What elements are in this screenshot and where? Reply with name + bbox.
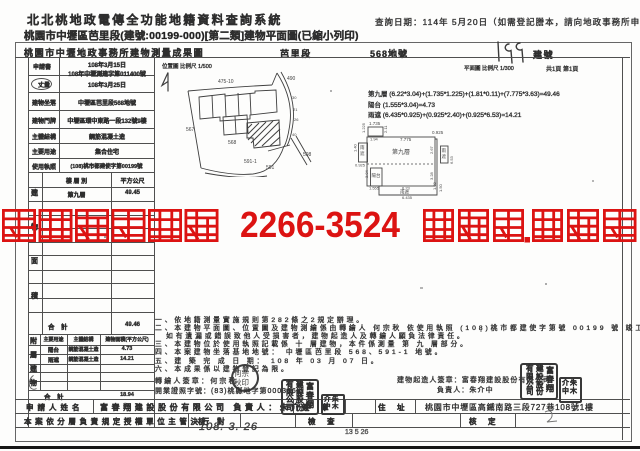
svg-text:陽台: 陽台 xyxy=(372,172,381,179)
svg-text:1.225: 1.225 xyxy=(361,122,366,133)
svg-text:7.775: 7.775 xyxy=(400,137,412,142)
svg-text:3.28: 3.28 xyxy=(429,171,434,180)
svg-text:26: 26 xyxy=(294,117,299,122)
svg-text:591: 591 xyxy=(266,165,275,171)
svg-text:6.435: 6.435 xyxy=(402,195,413,200)
svg-text:2266-3524: 2266-3524 xyxy=(240,206,400,245)
svg-text:591-1: 591-1 xyxy=(244,159,257,165)
svg-text:遮: 遮 xyxy=(442,153,447,160)
svg-text:1.94: 1.94 xyxy=(370,137,379,142)
svg-text:遮: 遮 xyxy=(360,150,365,157)
svg-text:1.555: 1.555 xyxy=(369,186,380,191)
svg-text:490: 490 xyxy=(287,76,296,82)
svg-text:475-10: 475-10 xyxy=(218,79,234,85)
svg-text:何宗: 何宗 xyxy=(234,368,249,378)
svg-text:1.02: 1.02 xyxy=(432,181,437,190)
svg-text:2.11: 2.11 xyxy=(383,125,388,133)
svg-text:1.735: 1.735 xyxy=(369,121,381,126)
svg-text:0.925: 0.925 xyxy=(355,163,366,168)
svg-text:21: 21 xyxy=(293,107,298,112)
svg-text:3.04: 3.04 xyxy=(364,169,369,178)
svg-text:1.50: 1.50 xyxy=(438,183,443,192)
svg-text:40: 40 xyxy=(292,132,297,137)
svg-text:第九層: 第九層 xyxy=(392,148,410,156)
svg-text:6.53: 6.53 xyxy=(449,155,454,164)
svg-text:567: 567 xyxy=(186,127,195,133)
svg-text:30: 30 xyxy=(292,95,297,100)
svg-text:0.925: 0.925 xyxy=(432,130,444,135)
svg-text:1.40: 1.40 xyxy=(353,143,358,152)
svg-text:568: 568 xyxy=(228,140,237,146)
svg-text:598: 598 xyxy=(303,152,312,158)
svg-text:2.67: 2.67 xyxy=(429,145,434,154)
